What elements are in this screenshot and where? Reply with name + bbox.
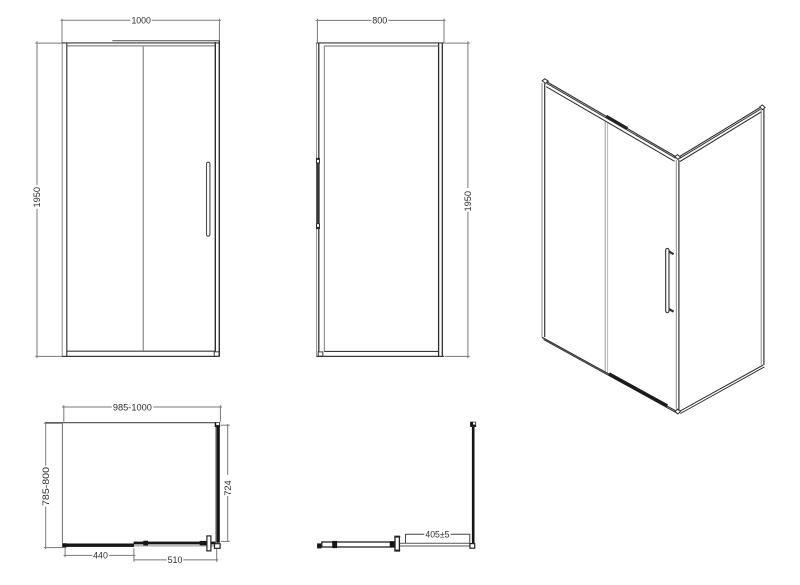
svg-text:785-800: 785-800 [41,467,51,506]
svg-text:510: 510 [168,555,183,565]
svg-text:405±5: 405±5 [425,529,449,539]
svg-text:1950: 1950 [32,187,42,208]
svg-text:440: 440 [93,551,108,561]
svg-text:800: 800 [372,16,387,26]
svg-text:985-1000: 985-1000 [113,402,152,412]
svg-text:724: 724 [223,480,233,496]
svg-text:1950: 1950 [463,191,473,212]
svg-text:1000: 1000 [131,16,151,26]
